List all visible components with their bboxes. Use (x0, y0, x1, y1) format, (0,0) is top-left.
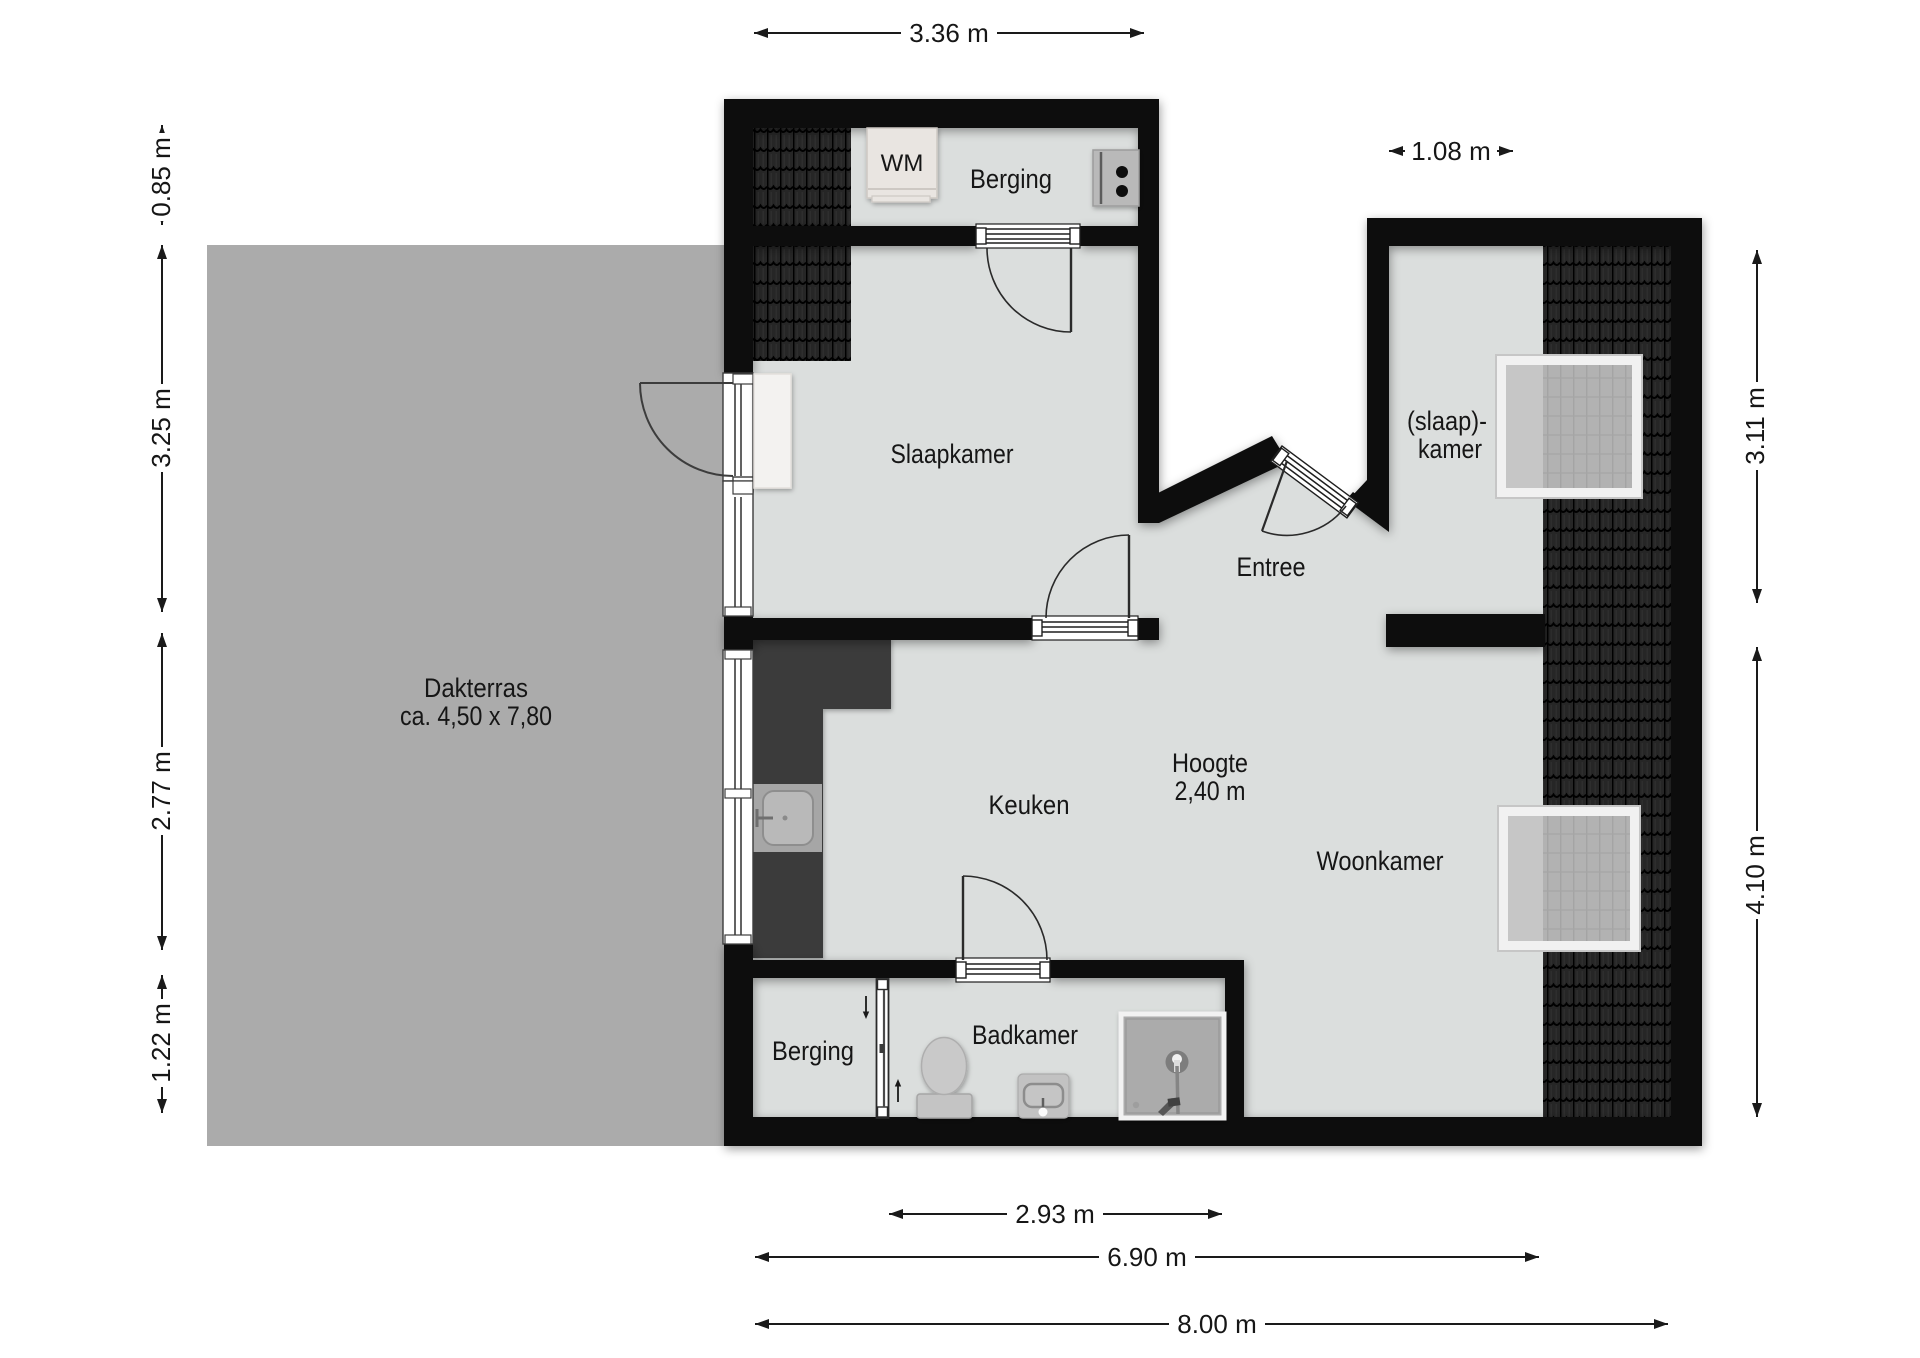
svg-text:Woonkamer: Woonkamer (1317, 846, 1444, 876)
svg-text:0.85 m: 0.85 m (146, 137, 176, 217)
svg-text:4.10 m: 4.10 m (1740, 835, 1770, 915)
svg-text:1.22 m: 1.22 m (146, 1003, 176, 1083)
svg-text:Badkamer: Badkamer (972, 1020, 1078, 1050)
svg-text:Dakterras: Dakterras (424, 673, 528, 703)
svg-text:3.11 m: 3.11 m (1740, 387, 1770, 465)
svg-text:3.36 m: 3.36 m (909, 18, 989, 48)
svg-text:ca. 4,50 x 7,80: ca. 4,50 x 7,80 (400, 701, 552, 731)
svg-text:2.77 m: 2.77 m (146, 751, 176, 831)
svg-text:Berging: Berging (772, 1036, 854, 1066)
svg-text:1.08 m: 1.08 m (1411, 136, 1491, 166)
svg-text:Hoogte: Hoogte (1172, 748, 1248, 778)
svg-text:kamer: kamer (1418, 434, 1482, 464)
svg-text:2.93 m: 2.93 m (1015, 1199, 1095, 1229)
svg-text:3.25 m: 3.25 m (146, 388, 176, 468)
svg-text:Berging: Berging (970, 164, 1052, 194)
svg-text:(slaap)-: (slaap)- (1407, 406, 1487, 436)
svg-text:Entree: Entree (1237, 552, 1306, 582)
svg-text:WM: WM (881, 150, 924, 177)
svg-text:2,40 m: 2,40 m (1175, 776, 1246, 806)
svg-text:8.00 m: 8.00 m (1177, 1309, 1257, 1339)
svg-text:Keuken: Keuken (989, 790, 1070, 820)
svg-text:Slaapkamer: Slaapkamer (891, 439, 1014, 469)
svg-text:6.90 m: 6.90 m (1107, 1242, 1187, 1272)
